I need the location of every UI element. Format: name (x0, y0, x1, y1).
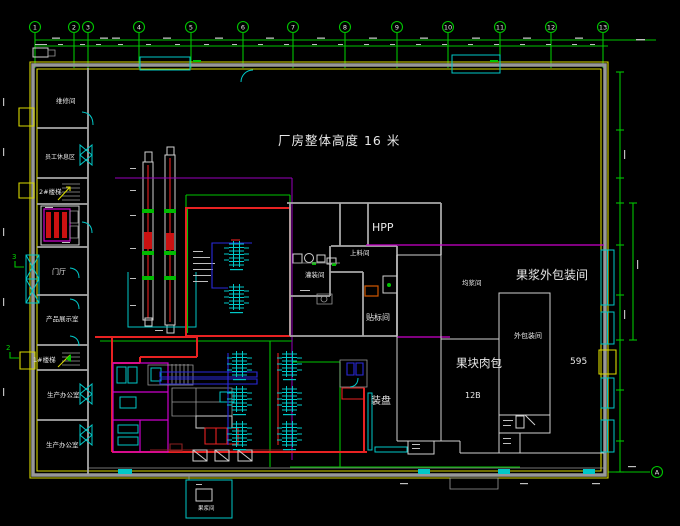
grid-bubble-5: 5 (189, 24, 193, 32)
room-label-feeding: 上料间 (350, 248, 370, 257)
grid-bubble-3: 3 (86, 24, 90, 32)
service-lines-purple (115, 178, 292, 460)
room-label-hpp: HPP (372, 221, 394, 234)
grid-bubble-4: 4 (137, 24, 141, 32)
grid-bubble-8: 8 (343, 24, 347, 32)
room-label-pulp-room: 果浆间 (198, 504, 215, 512)
room-label-production-office2: 生产办公室 (46, 440, 79, 449)
section-mark-3: 3 (12, 253, 16, 261)
section-mark-2: 2 (6, 344, 10, 352)
annotation-12b: 12B (465, 391, 481, 400)
room-label-staff-rest: 员工休息区 (45, 153, 75, 161)
grid-bubble-6: 6 (241, 24, 245, 32)
grid-bubble-11: 11 (496, 24, 504, 32)
grid-bubble-row-a: A (655, 469, 660, 477)
room-label-outer-packing: 外包装间 (514, 331, 542, 340)
cad-drawing-canvas[interactable]: 1 2 3 4 5 6 7 8 9 10 11 12 13 (0, 0, 680, 526)
loading-dock-step (400, 478, 600, 489)
top-dimension-ticks (42, 38, 645, 46)
room-label-product-showroom: 产品展示室 (46, 314, 79, 323)
room-label-labeling: 贴标间 (366, 312, 390, 322)
room-label-tray-loading: 装盘 (371, 394, 391, 407)
right-rooms (397, 255, 604, 454)
column-grid-top: 1 2 3 4 5 6 7 8 9 10 11 12 13 (30, 22, 657, 69)
room-label-pulp-outer-packing: 果浆外包装间 (516, 267, 588, 282)
grid-bubble-13: 13 (599, 24, 607, 32)
right-dimension-lines: A (608, 72, 663, 478)
grid-bubble-2: 2 (72, 24, 76, 32)
room-label-stair1: 1#楼梯 (33, 355, 56, 364)
stair1-symbol (58, 353, 80, 367)
room-label-filling: 灌装间 (305, 270, 325, 279)
transformer-room-equipment (41, 206, 79, 245)
room-label-maintenance: 维修间 (56, 96, 76, 105)
grid-bubble-1: 1 (33, 24, 37, 32)
room-label-stair2: 2#楼梯 (39, 187, 62, 196)
drawing-title: 厂房整体高度 16 米 (278, 133, 400, 148)
room-label-lobby: 门厅 (52, 267, 66, 276)
grid-bubble-9: 9 (395, 24, 399, 32)
labels: 厂房整体高度 16 米 HPP 上料间 灌装间 贴标间 装盘 果浆外包装间 均浆… (33, 96, 588, 512)
grid-bubble-10: 10 (444, 24, 452, 32)
grid-bubble-7: 7 (291, 24, 295, 32)
annotation-595: 595 (570, 357, 587, 367)
grid-bubble-12: 12 (547, 24, 555, 32)
floor-plan-drawing: 1 2 3 4 5 6 7 8 9 10 11 12 13 (0, 0, 680, 526)
grid-bubbles: 1 2 3 4 5 6 7 8 9 10 11 12 13 (30, 22, 609, 33)
room-label-homogenizing: 均浆间 (462, 278, 482, 287)
room-label-production-office1: 生产办公室 (47, 390, 80, 399)
room-label-fruit-block-pack: 果块肉包 (456, 356, 502, 370)
red-process-room (186, 195, 290, 336)
